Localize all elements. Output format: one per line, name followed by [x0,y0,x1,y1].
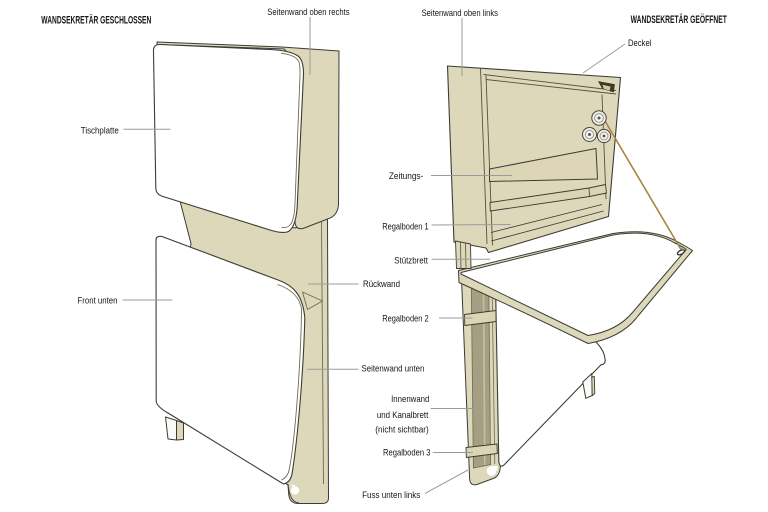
svg-text:Innenwand: Innenwand [391,394,429,405]
svg-text:Rückwand: Rückwand [363,279,400,290]
svg-text:Zeitungs-: Zeitungs- [389,171,423,182]
svg-text:und Kanalbrett: und Kanalbrett [377,410,429,421]
svg-text:WANDSEKRETÄR GEÖFFNET: WANDSEKRETÄR GEÖFFNET [631,13,728,26]
svg-text:Seitenwand oben links: Seitenwand oben links [422,8,499,19]
svg-text:Tischplatte: Tischplatte [81,126,119,137]
svg-text:Seitenwand unten: Seitenwand unten [362,364,425,375]
svg-text:WANDSEKRETÄR GESCHLOSSEN: WANDSEKRETÄR GESCHLOSSEN [41,14,151,27]
svg-text:Regalboden 1: Regalboden 1 [382,222,428,233]
svg-text:Regalboden 2: Regalboden 2 [382,314,428,325]
svg-text:Regalboden 3: Regalboden 3 [383,448,431,459]
svg-text:Seitenwand oben rechts: Seitenwand oben rechts [267,7,349,18]
svg-text:Stützbrett: Stützbrett [394,256,428,267]
svg-text:Deckel: Deckel [628,38,651,49]
svg-text:Front unten: Front unten [78,296,118,307]
svg-text:Fuss unten links: Fuss unten links [362,490,420,501]
svg-text:(nicht sichtbar): (nicht sichtbar) [375,425,428,436]
